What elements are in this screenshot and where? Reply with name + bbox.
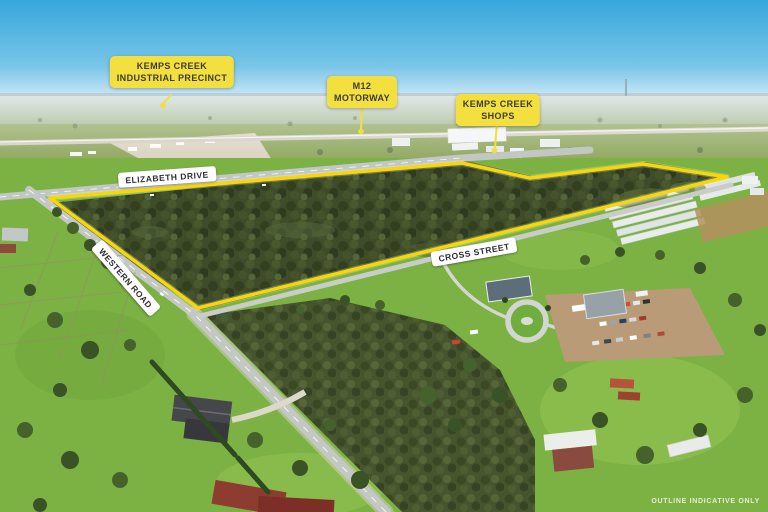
callout-kemps-creek-shops: KEMPS CREEK SHOPS [456, 94, 540, 126]
callout-line: M12 [334, 80, 390, 92]
callout-line: INDUSTRIAL PRECINCT [117, 72, 227, 84]
aerial-photo: KEMPS CREEK INDUSTRIAL PRECINCT M12 MOTO… [0, 0, 768, 512]
watermark-outline-indicative: OUTLINE INDICATIVE ONLY [651, 498, 760, 505]
callout-line: KEMPS CREEK [117, 60, 227, 72]
callout-line: KEMPS CREEK [463, 98, 533, 110]
callout-kemps-creek-industrial-precinct: KEMPS CREEK INDUSTRIAL PRECINCT [110, 56, 234, 88]
callout-m12-motorway: M12 MOTORWAY [327, 76, 397, 108]
pointer-dot-m12 [358, 129, 364, 135]
pointer-dot-industrial-precinct [160, 103, 166, 109]
pointer-m12 [361, 107, 362, 129]
callout-line: SHOPS [463, 110, 533, 122]
pointer-dot-shops [492, 148, 498, 154]
callout-line: MOTORWAY [334, 92, 390, 104]
